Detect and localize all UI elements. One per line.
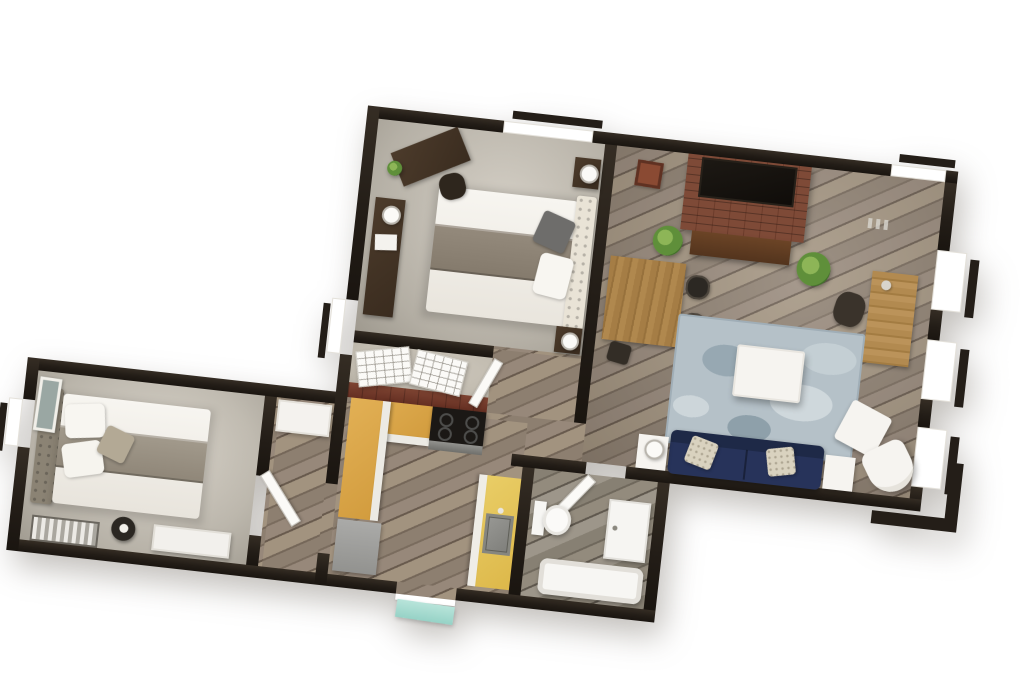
floor-plan-canvas bbox=[0, 0, 1024, 683]
refrigerator bbox=[332, 519, 382, 576]
window-living-right-3 bbox=[911, 427, 948, 490]
throw-pillow-right bbox=[766, 446, 797, 477]
wall-decor bbox=[634, 159, 664, 189]
wardrobe-cabinet bbox=[275, 399, 332, 437]
laundry-cabinet bbox=[603, 499, 651, 563]
dining-table bbox=[601, 255, 686, 347]
side-table-right bbox=[822, 455, 856, 492]
window-living-right-1 bbox=[931, 250, 968, 313]
wing-pillow-upper bbox=[65, 403, 106, 438]
passage-floor bbox=[524, 417, 586, 461]
dresser-tray bbox=[375, 234, 397, 251]
coffee-table bbox=[732, 344, 805, 403]
wall-right-3 bbox=[918, 399, 933, 428]
wall-right-2 bbox=[927, 309, 942, 340]
apartment-plan bbox=[0, 70, 1006, 683]
kitchen-sink bbox=[482, 513, 514, 556]
window-living-right-2 bbox=[921, 339, 958, 402]
window-frame-right-1 bbox=[964, 260, 979, 319]
closet-shelving-rack-left bbox=[355, 346, 412, 387]
window-frame-right-2 bbox=[954, 349, 969, 408]
corridor-floor bbox=[487, 346, 582, 422]
